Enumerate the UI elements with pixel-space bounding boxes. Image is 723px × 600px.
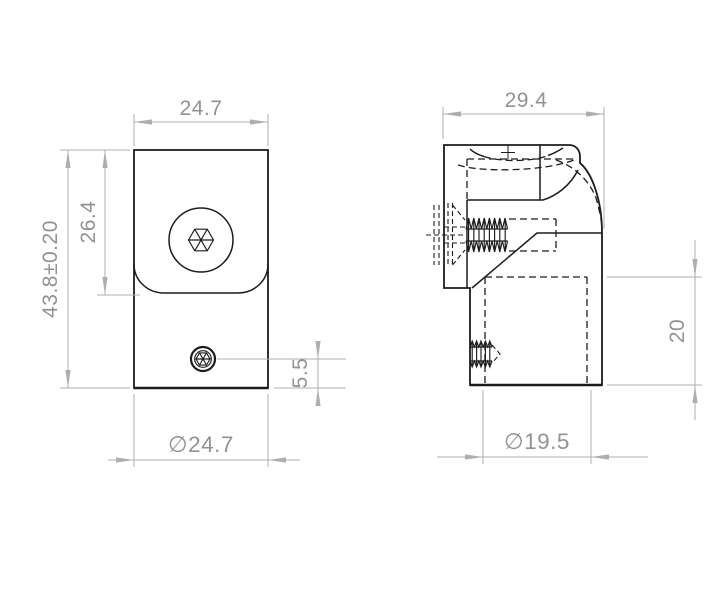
dim-label-side-top-width: 29.4 <box>505 89 548 112</box>
dim-front-set-screw-offset: 5.5 <box>217 341 346 406</box>
saddle-center-cross-icon <box>501 146 515 160</box>
technical-drawing: 24.7 43.8±0.20 26.4 5.5 ∅24.7 <box>0 0 723 600</box>
screw-thread-hatch <box>466 218 508 252</box>
set-screw-thread-hatch <box>470 341 492 367</box>
front-set-screw <box>191 347 215 371</box>
side-view: 29.4 20 ∅19.5 <box>426 89 702 464</box>
dim-label-front-top-width: 24.7 <box>180 97 223 120</box>
dim-label-front-saddle-height: 26.4 <box>77 201 100 244</box>
dim-label-front-overall-height: 43.8±0.20 <box>39 220 62 318</box>
dim-label-set-screw-offset: 5.5 <box>289 358 312 389</box>
front-view: 24.7 43.8±0.20 26.4 5.5 ∅24.7 <box>39 97 346 467</box>
dim-label-socket-depth: 20 <box>666 319 689 343</box>
dim-front-base-diameter: ∅24.7 <box>108 394 300 467</box>
hex-socket-icon <box>189 229 214 251</box>
dim-lines <box>217 341 346 406</box>
front-body-outline <box>134 150 268 388</box>
set-screw-hex-socket-icon <box>196 353 210 365</box>
dim-front-top-width: 24.7 <box>134 97 268 146</box>
dim-lines <box>60 150 130 388</box>
dim-front-overall-height: 43.8±0.20 <box>39 150 130 388</box>
dim-side-socket-depth: 20 <box>607 240 702 420</box>
dim-side-base-diameter: ∅19.5 <box>437 390 648 464</box>
dim-front-saddle-height: 26.4 <box>77 150 140 295</box>
set-screw-drill-point-hidden <box>492 345 500 363</box>
side-hidden-lines <box>458 156 602 386</box>
dim-label-side-base-diameter: ∅19.5 <box>504 429 570 454</box>
side-internal-edges <box>467 145 602 288</box>
dim-label-front-base-diameter: ∅24.7 <box>168 432 234 457</box>
front-saddle-curve <box>134 264 268 293</box>
drawing-canvas: 24.7 43.8±0.20 26.4 5.5 ∅24.7 <box>0 0 723 600</box>
countersunk-screw-head-hidden <box>426 203 466 267</box>
